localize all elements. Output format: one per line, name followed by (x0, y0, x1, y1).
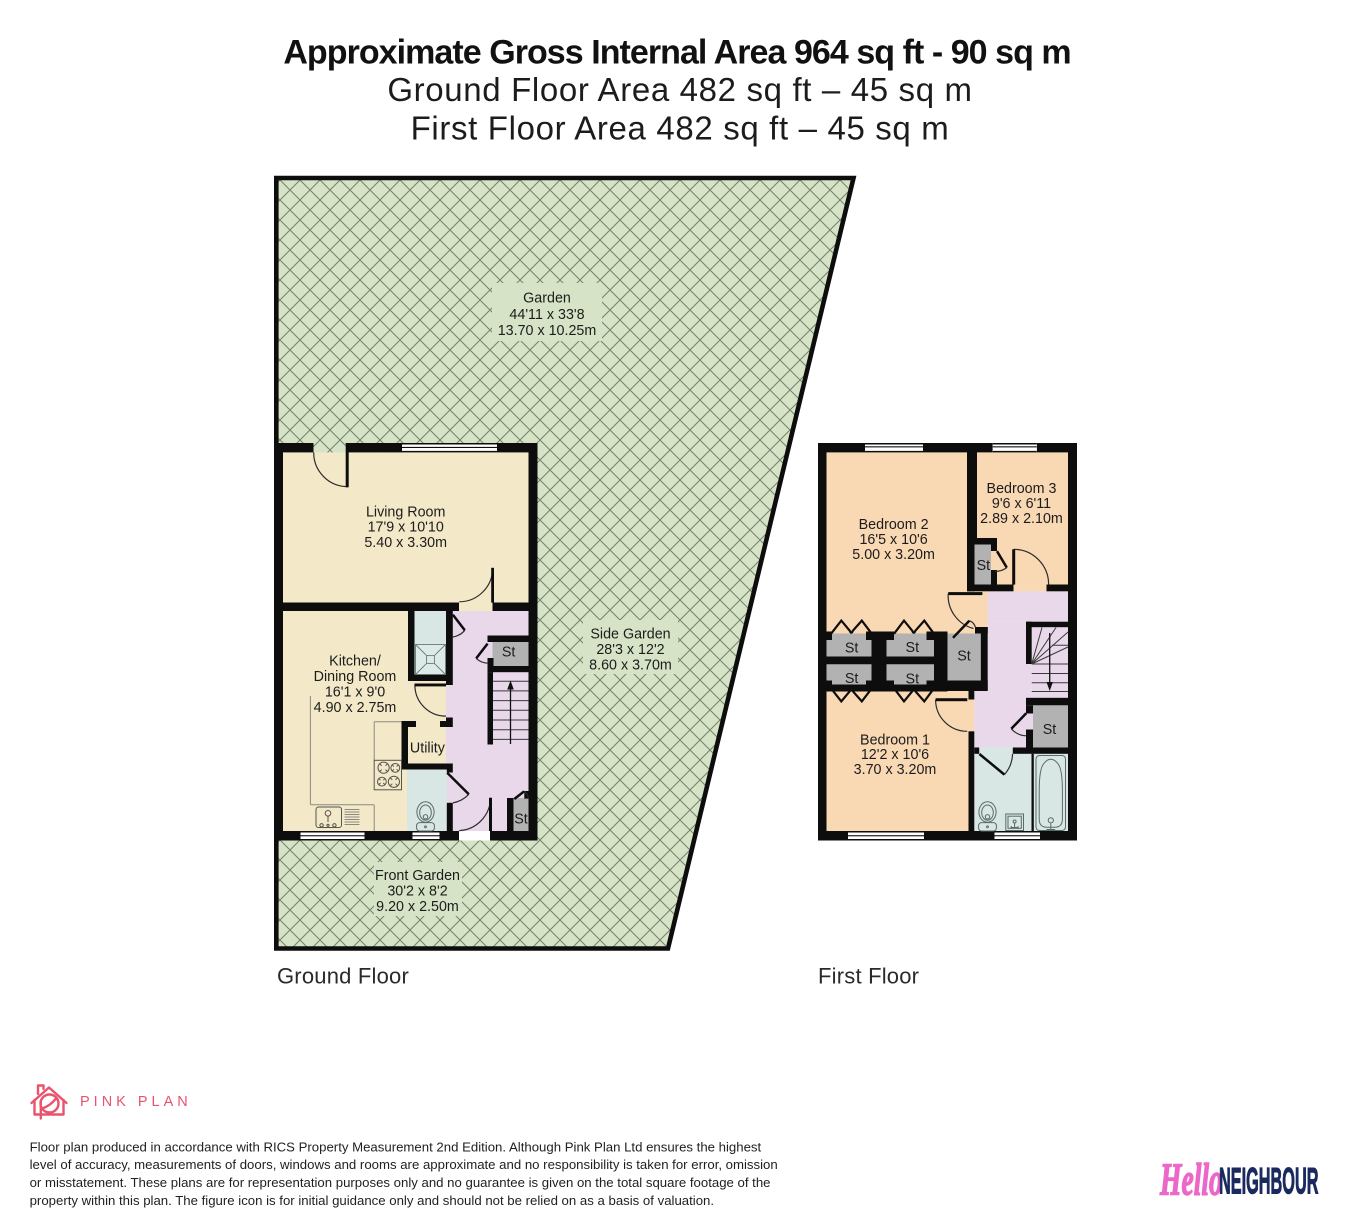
svg-text:St: St (845, 640, 859, 656)
svg-text:property within this plan. The: property within this plan. The figure ic… (30, 1193, 714, 1208)
svg-text:16'5 x 10'6: 16'5 x 10'6 (859, 532, 927, 548)
svg-text:NEIGHBOUR: NEIGHBOUR (1219, 1161, 1319, 1202)
svg-text:St: St (1043, 722, 1057, 738)
svg-text:First Floor Area 482 sq ft – 4: First Floor Area 482 sq ft – 45 sq m (411, 110, 950, 147)
svg-text:16'1 x 9'0: 16'1 x 9'0 (325, 685, 385, 701)
svg-text:level of accuracy, measurement: level of accuracy, measurements of doors… (30, 1157, 778, 1172)
svg-text:or misstatement. These plans a: or misstatement. These plans are for rep… (30, 1175, 771, 1190)
svg-text:First Floor: First Floor (818, 963, 919, 988)
svg-text:Dining Room: Dining Room (314, 669, 397, 685)
svg-text:Approximate Gross Internal Are: Approximate Gross Internal Area 964 sq f… (283, 34, 1070, 72)
svg-text:9.20 x 2.50m: 9.20 x 2.50m (376, 899, 459, 915)
svg-text:12'2 x 10'6: 12'2 x 10'6 (861, 747, 929, 763)
svg-text:Kitchen/: Kitchen/ (329, 654, 381, 670)
svg-text:13.70 x 10.25m: 13.70 x 10.25m (498, 323, 597, 339)
svg-text:St: St (502, 644, 516, 660)
svg-text:Front Garden: Front Garden (375, 868, 460, 884)
svg-text:PINK PLAN: PINK PLAN (80, 1094, 192, 1110)
svg-text:Bedroom 2: Bedroom 2 (859, 517, 929, 533)
svg-text:17'9 x 10'10: 17'9 x 10'10 (368, 520, 444, 536)
svg-text:Bedroom 3: Bedroom 3 (987, 481, 1057, 497)
svg-text:44'11 x 33'8: 44'11 x 33'8 (509, 307, 584, 323)
svg-text:Side Garden: Side Garden (590, 626, 670, 642)
svg-text:St: St (977, 558, 991, 574)
svg-text:Garden: Garden (523, 290, 571, 306)
svg-text:Utility: Utility (410, 740, 446, 756)
svg-text:4.90 x 2.75m: 4.90 x 2.75m (314, 700, 397, 716)
svg-text:Ground Floor: Ground Floor (277, 963, 409, 988)
svg-text:St: St (906, 640, 920, 656)
svg-text:St: St (906, 672, 920, 688)
svg-text:Hello: Hello (1159, 1154, 1223, 1205)
svg-text:30'2 x 8'2: 30'2 x 8'2 (387, 883, 447, 899)
svg-text:28'3 x 12'2: 28'3 x 12'2 (596, 642, 664, 658)
svg-text:2.89 x 2.10m: 2.89 x 2.10m (980, 511, 1063, 527)
svg-text:St: St (514, 811, 528, 827)
svg-text:St: St (957, 649, 971, 665)
svg-text:Bedroom 1: Bedroom 1 (860, 732, 930, 748)
svg-text:Ground Floor Area 482 sq ft –: Ground Floor Area 482 sq ft – 45 sq m (387, 71, 972, 108)
svg-text:8.60 x 3.70m: 8.60 x 3.70m (589, 657, 672, 673)
svg-text:3.70 x 3.20m: 3.70 x 3.20m (854, 762, 937, 778)
svg-text:9'6 x 6'11: 9'6 x 6'11 (992, 496, 1051, 512)
svg-text:Floor plan produced in accorda: Floor plan produced in accordance with R… (30, 1139, 762, 1154)
svg-text:St: St (845, 671, 859, 687)
svg-text:Living Room: Living Room (366, 504, 445, 520)
svg-text:5.40 x 3.30m: 5.40 x 3.30m (364, 535, 447, 551)
svg-text:5.00 x 3.20m: 5.00 x 3.20m (852, 547, 935, 563)
